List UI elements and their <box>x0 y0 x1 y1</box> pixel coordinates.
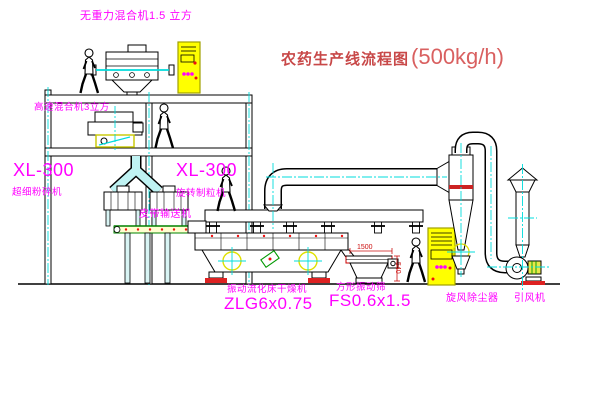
granulator-left <box>104 186 142 226</box>
fan-label: 引风机 <box>514 294 546 304</box>
sieve-length-dimension: 1500 <box>357 244 373 251</box>
sieve-model-label: FS0.6x1.5 <box>329 292 411 309</box>
belt-conveyor-label: 皮带输送机 <box>139 210 192 220</box>
speed-mixer-label: 高速混合机3立方 <box>34 103 110 113</box>
title-capacity: (500kg/h) <box>411 44 504 70</box>
granulator-name-label: 旋转制粒机 <box>176 189 226 199</box>
person-figure <box>156 104 174 148</box>
drawing-title: 农药生产线流程图 (500kg/h) <box>281 44 504 70</box>
control-cabinet-bottom <box>428 228 455 285</box>
fluid-bed-dryer <box>188 210 423 283</box>
vibrating-sieve <box>346 248 400 283</box>
sieve-height-dimension: 540 <box>394 262 401 274</box>
mill-model-label: XL-300 <box>13 161 74 179</box>
induced-draft-fan <box>506 257 545 285</box>
granulator-model-label: XL-300 <box>176 161 237 179</box>
gravity-mixer-label: 无重力混合机1.5 立方 <box>80 11 192 22</box>
cyclone-label: 旋风除尘器 <box>446 294 499 304</box>
control-cabinet-top <box>178 42 200 93</box>
gravity-free-mixer <box>91 45 174 95</box>
mill-name-label: 超细粉碎机 <box>12 188 62 198</box>
exhaust-duct <box>264 161 450 211</box>
belt-conveyor <box>114 226 198 283</box>
dryer-model-label: ZLG6x0.75 <box>224 295 313 312</box>
title-text: 农药生产线流程图 <box>281 48 409 69</box>
cad-drawing-canvas: 农药生产线流程图 (500kg/h) 无重力混合机1.5 立方 高速混合机3立方… <box>0 0 600 403</box>
person-figure <box>408 238 426 282</box>
